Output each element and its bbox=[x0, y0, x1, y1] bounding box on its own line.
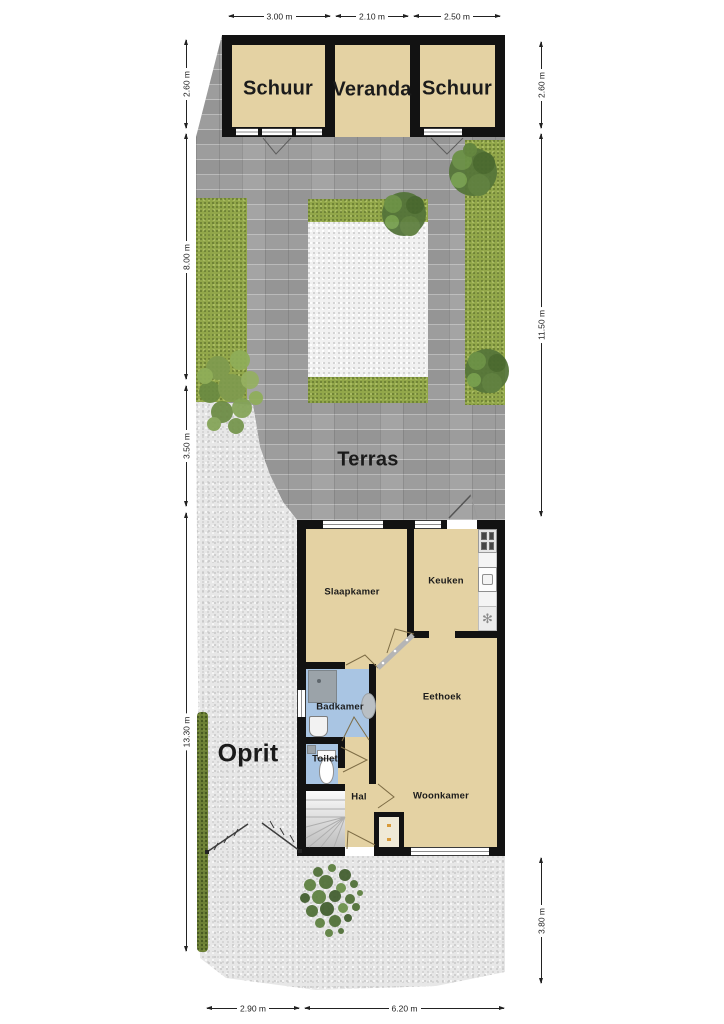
badkamer-toilet-wall bbox=[306, 737, 345, 744]
dimension-right-3: 3.80 m bbox=[541, 858, 542, 983]
dimension-right-1: 2.60 m bbox=[541, 42, 542, 128]
terras-label: Terras bbox=[337, 449, 398, 472]
extractor-icon: ✻ bbox=[478, 606, 497, 631]
sink-icon bbox=[478, 567, 497, 592]
schuur-left-label: Schuur bbox=[243, 78, 313, 101]
hal-label: Hal bbox=[351, 792, 366, 803]
meter-mark bbox=[387, 824, 391, 827]
slaapkamer-label: Slaapkamer bbox=[324, 587, 379, 598]
dimension-left-1: 2.60 m bbox=[186, 40, 187, 128]
dimension-label: 3.00 m bbox=[264, 13, 296, 22]
schuur-right-label: Schuur bbox=[422, 78, 492, 101]
back-door-opening bbox=[447, 520, 477, 529]
woonkamer-window bbox=[411, 847, 489, 856]
dimension-label: 3.80 m bbox=[538, 905, 547, 937]
house-east-wall bbox=[497, 520, 505, 856]
dimension-label: 8.00 m bbox=[183, 241, 192, 273]
grass-strip-left bbox=[196, 198, 247, 402]
floorplan-canvas: Terras Oprit Schuur Veranda Schuur bbox=[0, 0, 724, 1024]
slaapkamer-badkamer-wall bbox=[306, 662, 345, 669]
meter-mark-2 bbox=[387, 838, 391, 841]
toilet-stairs-wall bbox=[306, 784, 345, 791]
dimension-label: 2.90 m bbox=[237, 1005, 269, 1014]
grass-border-top bbox=[308, 199, 428, 222]
slaapkamer-window bbox=[323, 520, 383, 529]
stairs bbox=[306, 791, 345, 847]
dimension-label: 6.20 m bbox=[389, 1005, 421, 1014]
schuur-left-window-2 bbox=[296, 128, 322, 136]
grass-border-bottom bbox=[308, 377, 428, 403]
keuken-eethoek-wall-right bbox=[455, 631, 497, 638]
toilet-label: Toilet bbox=[312, 754, 338, 765]
extractor-glyph: ✻ bbox=[482, 611, 493, 627]
schuur-left-door bbox=[262, 128, 292, 136]
keuken-label: Keuken bbox=[428, 576, 464, 587]
dimension-top-2: 2.10 m bbox=[336, 16, 408, 17]
dimension-bottom-2: 6.20 m bbox=[305, 1008, 504, 1009]
dimension-left-2: 8.00 m bbox=[186, 134, 187, 379]
dimension-right-2: 11.50 m bbox=[541, 134, 542, 516]
dimension-label: 3.50 m bbox=[183, 430, 192, 462]
dimension-top-3: 2.50 m bbox=[414, 16, 500, 17]
house-west-wall bbox=[297, 520, 306, 856]
outbuilding-top-wall bbox=[222, 35, 505, 45]
keuken-window bbox=[415, 520, 441, 529]
eethoek-label: Eethoek bbox=[423, 692, 461, 703]
dimension-label: 2.50 m bbox=[441, 13, 473, 22]
keuken-eethoek-wall-left bbox=[407, 631, 429, 638]
schuur-left-window bbox=[236, 128, 258, 136]
dimension-left-4: 13.30 m bbox=[186, 513, 187, 951]
dimension-label: 11.50 m bbox=[538, 307, 547, 343]
slaapkamer-keuken-wall bbox=[407, 528, 414, 638]
washbasin-icon bbox=[309, 716, 328, 737]
badkamer-label: Badkamer bbox=[316, 702, 364, 713]
dimension-label: 2.10 m bbox=[356, 13, 388, 22]
badkamer-hal-wall bbox=[369, 664, 376, 784]
badkamer-window bbox=[297, 690, 306, 717]
dimension-left-3: 3.50 m bbox=[186, 386, 187, 506]
meter-cupboard-interior bbox=[379, 817, 399, 847]
dimension-bottom-1: 2.90 m bbox=[207, 1008, 299, 1009]
schuur-right-door bbox=[424, 128, 462, 136]
gravel-patio-center bbox=[308, 222, 428, 377]
woonkamer-label: Woonkamer bbox=[413, 791, 469, 802]
schuur-left-west-wall bbox=[222, 35, 232, 137]
shower-icon bbox=[308, 670, 337, 703]
dimension-label: 2.60 m bbox=[538, 69, 547, 101]
veranda-label: Veranda bbox=[332, 79, 411, 102]
dimension-top-1: 3.00 m bbox=[229, 16, 330, 17]
dimension-label: 2.60 m bbox=[183, 68, 192, 100]
dimension-label: 13.30 m bbox=[183, 714, 192, 751]
hedge-left-boundary bbox=[197, 712, 208, 952]
stove-icon bbox=[478, 529, 497, 553]
schuur-right-east-wall bbox=[495, 35, 505, 137]
front-door-opening bbox=[345, 847, 374, 856]
grass-strip-right bbox=[465, 140, 505, 405]
toilet-hal-wall bbox=[338, 744, 345, 768]
oprit-label: Oprit bbox=[218, 740, 279, 769]
